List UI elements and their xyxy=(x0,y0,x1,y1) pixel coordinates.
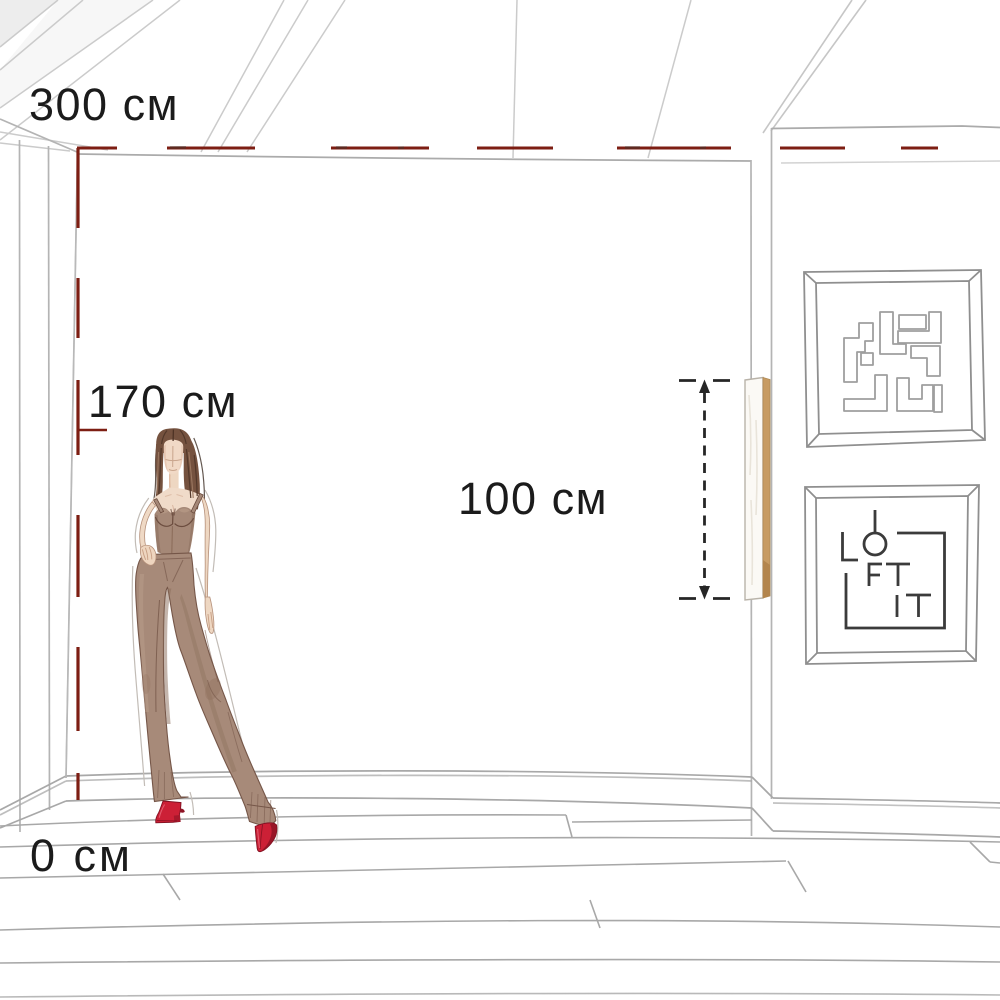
svg-text:100 см: 100 см xyxy=(458,473,608,524)
svg-text:170 см: 170 см xyxy=(88,376,238,427)
svg-text:300 см: 300 см xyxy=(29,79,179,130)
svg-text:0 см: 0 см xyxy=(30,830,133,881)
